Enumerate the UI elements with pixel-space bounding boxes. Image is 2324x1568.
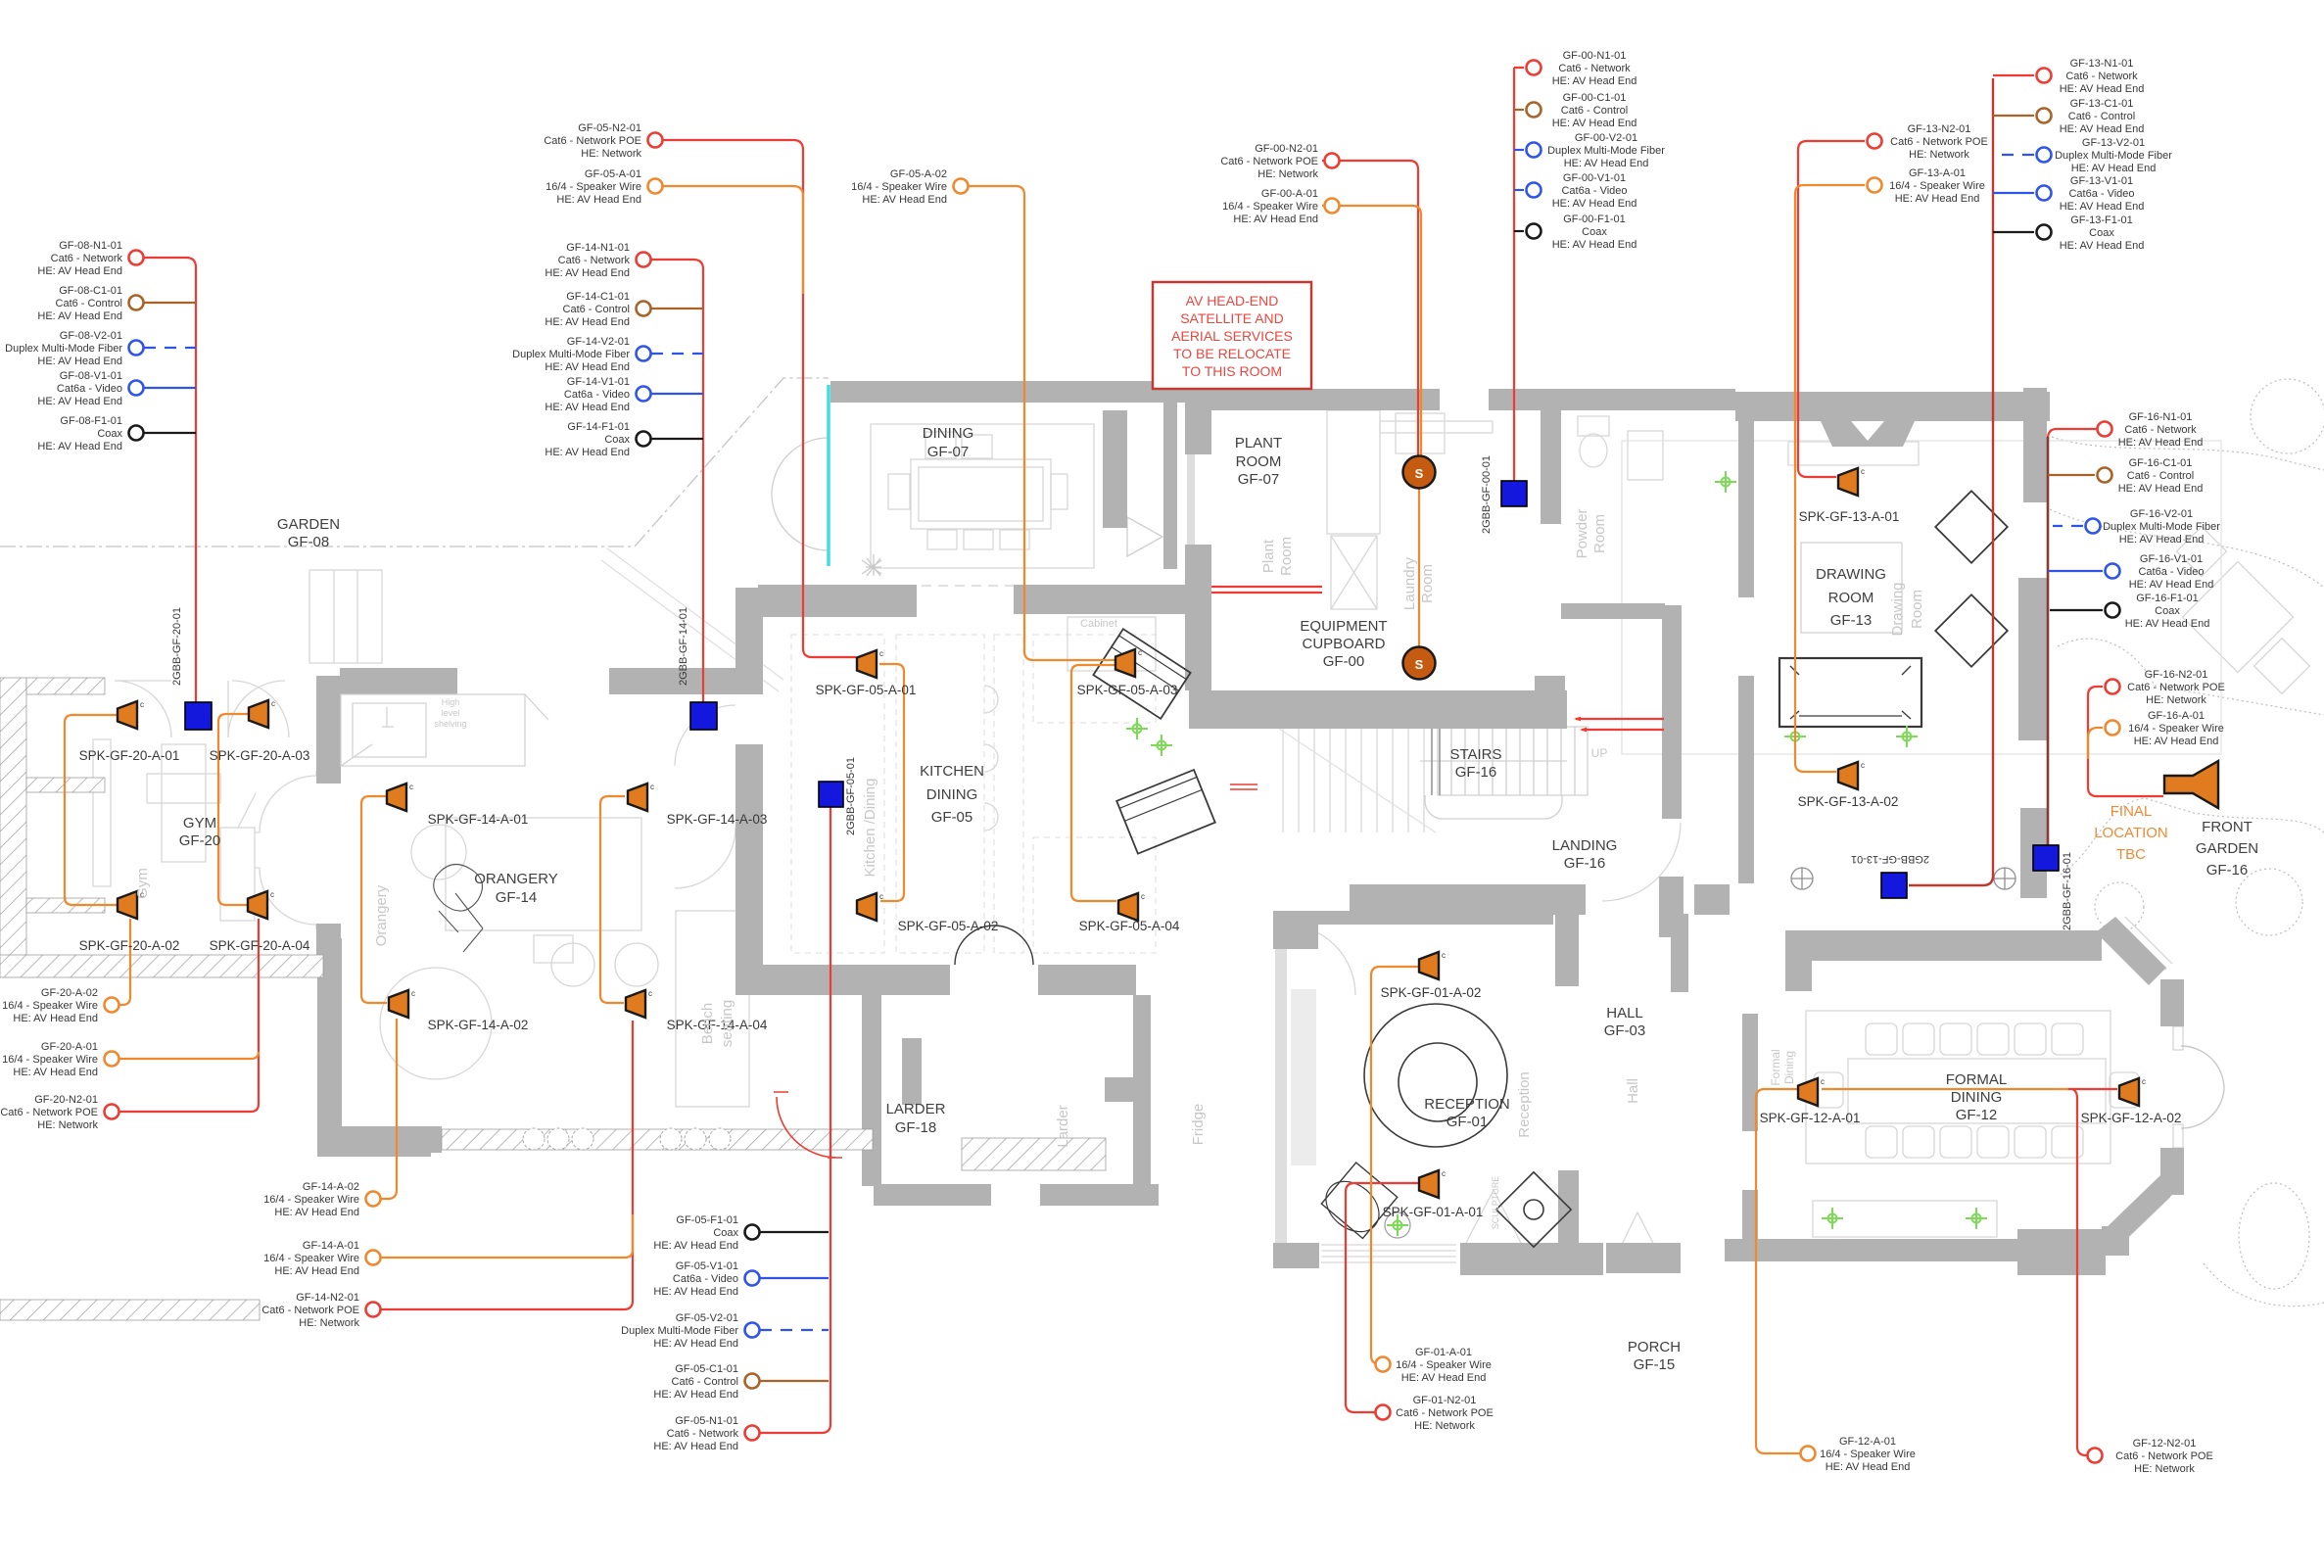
svg-text:HE: AV Head End: HE: AV Head End	[862, 194, 947, 206]
svg-text:HE: Network: HE: Network	[1909, 149, 1969, 161]
svg-text:Cat6 - Control: Cat6 - Control	[1561, 105, 1628, 117]
svg-text:GF-13: GF-13	[1830, 612, 1873, 629]
svg-text:GF-05-A-02: GF-05-A-02	[890, 168, 947, 180]
svg-text:Duplex Multi-Mode Fiber: Duplex Multi-Mode Fiber	[512, 349, 630, 360]
svg-text:FRONT: FRONT	[2202, 819, 2253, 835]
svg-text:GF-07: GF-07	[927, 444, 970, 460]
svg-text:AERIAL SERVICES: AERIAL SERVICES	[1171, 328, 1293, 344]
svg-text:2GBB-GF-05-01: 2GBB-GF-05-01	[845, 757, 857, 835]
svg-text:16/4 - Speaker Wire: 16/4 - Speaker Wire	[851, 181, 947, 193]
svg-text:GF-00-C1-01: GF-00-C1-01	[1563, 92, 1627, 104]
svg-text:PLANT: PLANT	[1235, 435, 1282, 451]
svg-text:HE: AV Head End: HE: AV Head End	[545, 267, 630, 279]
svg-text:Orangery: Orangery	[373, 884, 390, 946]
svg-text:GF-14-N2-01: GF-14-N2-01	[296, 1292, 359, 1304]
svg-text:LOCATION: LOCATION	[2094, 825, 2168, 841]
svg-text:Duplex Multi-Mode Fiber: Duplex Multi-Mode Fiber	[5, 343, 122, 355]
svg-text:FORMAL: FORMAL	[1946, 1071, 2008, 1088]
svg-text:Cat6 - Network: Cat6 - Network	[667, 1428, 739, 1440]
svg-text:GF-00-V2-01: GF-00-V2-01	[1575, 132, 1637, 144]
svg-text:AV HEAD-END: AV HEAD-END	[1186, 293, 1279, 309]
svg-text:HE: AV Head End: HE: AV Head End	[545, 402, 630, 413]
svg-text:Powder: Powder	[1574, 509, 1590, 559]
svg-text:SPK-GF-05-A-01: SPK-GF-05-A-01	[816, 683, 917, 697]
svg-text:HE: AV Head End: HE: AV Head End	[2118, 437, 2204, 449]
svg-text:GF-12-A-01: GF-12-A-01	[1839, 1436, 1896, 1448]
svg-text:GF-07: GF-07	[1238, 471, 1280, 488]
svg-text:Coax: Coax	[713, 1227, 738, 1239]
svg-text:SPK-GF-14-A-03: SPK-GF-14-A-03	[667, 812, 768, 827]
svg-text:16/4 - Speaker Wire: 16/4 - Speaker Wire	[1889, 180, 1985, 192]
svg-text:HE: AV Head End: HE: AV Head End	[2134, 736, 2219, 747]
svg-text:TBC: TBC	[2116, 846, 2146, 863]
svg-text:Cat6 - Network POE: Cat6 - Network POE	[1396, 1407, 1494, 1419]
svg-text:Coax: Coax	[2155, 605, 2180, 617]
svg-text:SPK-GF-20-A-03: SPK-GF-20-A-03	[210, 748, 310, 763]
svg-text:Room: Room	[1909, 590, 1925, 629]
svg-text:HE: Network: HE: Network	[1414, 1420, 1475, 1432]
svg-text:Duplex Multi-Mode Fiber: Duplex Multi-Mode Fiber	[2055, 150, 2172, 162]
svg-text:GF-08-C1-01: GF-08-C1-01	[59, 285, 122, 297]
svg-text:HE: AV Head End: HE: AV Head End	[2118, 483, 2204, 495]
svg-text:PORCH: PORCH	[1628, 1339, 1681, 1355]
svg-text:GF-13-N2-01: GF-13-N2-01	[1908, 123, 1971, 135]
svg-text:HE: AV Head End: HE: AV Head End	[37, 356, 122, 367]
svg-text:Kitchen /Dining: Kitchen /Dining	[862, 779, 878, 878]
svg-text:HE: AV Head End: HE: AV Head End	[653, 1389, 738, 1401]
svg-text:TO BE RELOCATE: TO BE RELOCATE	[1173, 346, 1291, 361]
svg-text:Cat6 - Network POE: Cat6 - Network POE	[0, 1107, 98, 1118]
svg-text:GF-05: GF-05	[931, 809, 973, 826]
svg-text:Coax: Coax	[1582, 226, 1607, 238]
svg-text:HE: AV Head End: HE: AV Head End	[653, 1240, 738, 1252]
svg-text:HE: AV Head End: HE: AV Head End	[1552, 239, 1637, 251]
svg-text:SPK-GF-20-A-02: SPK-GF-20-A-02	[79, 938, 180, 953]
svg-text:SPK-GF-01-A-01: SPK-GF-01-A-01	[1383, 1205, 1484, 1219]
svg-text:GF-12-N2-01: GF-12-N2-01	[2133, 1438, 2197, 1449]
svg-text:HE: AV Head End: HE: AV Head End	[653, 1441, 738, 1452]
svg-text:2GBB-GF-16-01: 2GBB-GF-16-01	[2062, 852, 2073, 930]
svg-text:GF-12: GF-12	[1956, 1107, 1998, 1123]
svg-text:HE: AV Head End: HE: AV Head End	[1552, 198, 1637, 210]
svg-text:CUPBOARD: CUPBOARD	[1302, 636, 1385, 652]
svg-text:Coax: Coax	[604, 434, 630, 446]
svg-text:LANDING: LANDING	[1552, 837, 1618, 854]
svg-text:HE: AV Head End: HE: AV Head End	[1552, 118, 1637, 129]
svg-text:Plant: Plant	[1260, 539, 1277, 573]
svg-text:2GBB-GF-00-01: 2GBB-GF-00-01	[1481, 455, 1493, 534]
svg-text:HE: Network: HE: Network	[2134, 1463, 2195, 1475]
svg-text:16/4 - Speaker Wire: 16/4 - Speaker Wire	[2128, 723, 2224, 735]
svg-text:S: S	[1415, 466, 1424, 481]
svg-text:GF-05-F1-01: GF-05-F1-01	[676, 1214, 738, 1226]
svg-text:Cat6a - Video: Cat6a - Video	[1561, 185, 1627, 197]
svg-text:GF-05-C1-01: GF-05-C1-01	[675, 1363, 738, 1375]
svg-text:DINING: DINING	[926, 786, 978, 803]
svg-text:GF-05-V2-01: GF-05-V2-01	[676, 1312, 738, 1324]
svg-text:HE: AV Head End: HE: AV Head End	[37, 310, 122, 322]
svg-text:TO THIS ROOM: TO THIS ROOM	[1182, 363, 1282, 379]
svg-text:Gym: Gym	[134, 868, 151, 899]
svg-text:HE: AV Head End: HE: AV Head End	[545, 361, 630, 373]
svg-text:HE: AV Head End: HE: AV Head End	[1233, 214, 1318, 225]
svg-text:GF-20: GF-20	[179, 832, 221, 849]
svg-text:HE: AV Head End: HE: AV Head End	[2060, 201, 2145, 213]
svg-text:HE: AV Head End: HE: AV Head End	[545, 316, 630, 328]
svg-text:HE: AV Head End: HE: AV Head End	[545, 447, 630, 458]
svg-text:DRAWING: DRAWING	[1816, 566, 1886, 583]
svg-text:16/4 - Speaker Wire: 16/4 - Speaker Wire	[2, 1000, 98, 1012]
svg-text:GF-13-F1-01: GF-13-F1-01	[2070, 214, 2133, 226]
svg-text:Cat6 - Network POE: Cat6 - Network POE	[1220, 156, 1318, 167]
svg-text:Cat6 - Network POE: Cat6 - Network POE	[1890, 136, 1988, 148]
svg-text:SPK-GF-12-A-02: SPK-GF-12-A-02	[2081, 1111, 2182, 1125]
svg-text:SPK-GF-20-A-04: SPK-GF-20-A-04	[210, 938, 310, 953]
svg-text:Duplex Multi-Mode Fiber: Duplex Multi-Mode Fiber	[2103, 521, 2220, 533]
svg-text:HE: AV Head End: HE: AV Head End	[274, 1207, 359, 1218]
svg-text:GF-01-A-01: GF-01-A-01	[1415, 1347, 1472, 1358]
svg-text:HE: AV Head End: HE: AV Head End	[2060, 240, 2145, 252]
svg-text:GF-13-V1-01: GF-13-V1-01	[2070, 175, 2133, 187]
svg-text:GF-14-A-02: GF-14-A-02	[303, 1181, 359, 1193]
svg-text:2GBB-GF-13-01: 2GBB-GF-13-01	[1851, 853, 1929, 865]
svg-text:SPK-GF-05-A-02: SPK-GF-05-A-02	[898, 919, 999, 933]
svg-text:2GBB-GF-14-01: 2GBB-GF-14-01	[678, 607, 689, 686]
svg-text:GF-14: GF-14	[496, 889, 538, 906]
svg-text:HE: AV Head End: HE: AV Head End	[13, 1013, 98, 1024]
svg-text:HE: AV Head End: HE: AV Head End	[2119, 534, 2205, 546]
svg-text:16/4 - Speaker Wire: 16/4 - Speaker Wire	[2, 1054, 98, 1066]
svg-text:HE: AV Head End: HE: AV Head End	[1552, 75, 1637, 87]
svg-text:SPK-GF-13-A-02: SPK-GF-13-A-02	[1798, 794, 1899, 809]
svg-text:GF-08-V2-01: GF-08-V2-01	[60, 330, 122, 342]
svg-text:Cat6 - Control: Cat6 - Control	[56, 298, 122, 309]
svg-text:SPK-GF-14-A-01: SPK-GF-14-A-01	[428, 812, 529, 827]
svg-text:SPK-GF-12-A-01: SPK-GF-12-A-01	[1760, 1111, 1861, 1125]
svg-text:GF-16-V2-01: GF-16-V2-01	[2130, 508, 2193, 520]
svg-text:Reception: Reception	[1516, 1071, 1533, 1138]
svg-text:Cat6a - Video: Cat6a - Video	[2068, 188, 2134, 200]
svg-text:16/4 - Speaker Wire: 16/4 - Speaker Wire	[263, 1194, 359, 1206]
svg-text:UP: UP	[1591, 746, 1608, 760]
svg-text:GF-00-N1-01: GF-00-N1-01	[1563, 50, 1627, 62]
svg-text:GF-03: GF-03	[1604, 1022, 1646, 1039]
svg-text:HE: AV Head End: HE: AV Head End	[274, 1265, 359, 1277]
svg-text:HALL: HALL	[1606, 1005, 1643, 1022]
svg-text:SPK-GF-14-A-02: SPK-GF-14-A-02	[428, 1018, 529, 1032]
svg-text:Duplex Multi-Mode Fiber: Duplex Multi-Mode Fiber	[621, 1325, 738, 1337]
svg-text:HE: AV Head End: HE: AV Head End	[653, 1338, 738, 1350]
svg-text:Room: Room	[1278, 537, 1295, 576]
svg-text:HE: Network: HE: Network	[581, 148, 641, 160]
svg-text:Cat6a - Video: Cat6a - Video	[564, 389, 630, 401]
svg-text:SPK-GF-05-A-03: SPK-GF-05-A-03	[1077, 683, 1178, 697]
svg-text:16/4 - Speaker Wire: 16/4 - Speaker Wire	[1396, 1359, 1492, 1371]
svg-text:GF-16-A-01: GF-16-A-01	[2148, 710, 2205, 722]
svg-text:GF-18: GF-18	[895, 1119, 937, 1136]
svg-text:HE: AV Head End: HE: AV Head End	[13, 1067, 98, 1078]
svg-text:GF-14-F1-01: GF-14-F1-01	[567, 421, 630, 433]
svg-text:Duplex Multi-Mode Fiber: Duplex Multi-Mode Fiber	[1547, 145, 1665, 157]
svg-text:Cat6 - Control: Cat6 - Control	[672, 1376, 738, 1388]
svg-text:GF-08: GF-08	[288, 534, 330, 550]
svg-text:level: level	[442, 708, 460, 718]
svg-text:Cat6 - Control: Cat6 - Control	[2068, 111, 2135, 122]
svg-text:FINAL: FINAL	[2111, 803, 2153, 820]
svg-text:RECEPTION: RECEPTION	[1424, 1096, 1510, 1113]
svg-text:Cat6 - Network: Cat6 - Network	[2124, 424, 2197, 436]
svg-text:Cat6 - Network: Cat6 - Network	[1558, 63, 1631, 74]
svg-text:SATELLITE AND: SATELLITE AND	[1180, 310, 1284, 326]
svg-text:Cat6 - Network POE: Cat6 - Network POE	[544, 135, 641, 147]
svg-text:GF-16-N1-01: GF-16-N1-01	[2129, 411, 2193, 423]
svg-text:ROOM: ROOM	[1828, 590, 1874, 606]
svg-text:Cat6 - Network POE: Cat6 - Network POE	[2115, 1450, 2213, 1462]
svg-text:GF-00-N2-01: GF-00-N2-01	[1255, 143, 1318, 155]
svg-text:High: High	[442, 697, 460, 707]
svg-text:S: S	[1415, 657, 1424, 672]
svg-text:Formal: Formal	[1769, 1049, 1782, 1085]
svg-text:16/4 - Speaker Wire: 16/4 - Speaker Wire	[263, 1253, 359, 1264]
svg-text:HE: AV Head End: HE: AV Head End	[37, 265, 122, 277]
svg-text:KITCHEN: KITCHEN	[920, 763, 984, 780]
svg-text:GF-16-C1-01: GF-16-C1-01	[2129, 457, 2193, 469]
svg-text:GF-20-N2-01: GF-20-N2-01	[34, 1094, 98, 1106]
svg-text:Cat6 - Network POE: Cat6 - Network POE	[261, 1305, 359, 1316]
svg-text:GF-20-A-02: GF-20-A-02	[41, 987, 98, 999]
svg-text:SPK-GF-01-A-02: SPK-GF-01-A-02	[1381, 985, 1482, 1000]
svg-text:SPK-GF-20-A-01: SPK-GF-20-A-01	[79, 748, 180, 763]
svg-text:GF-01: GF-01	[1447, 1114, 1489, 1130]
svg-text:16/4 - Speaker Wire: 16/4 - Speaker Wire	[1222, 201, 1318, 213]
svg-text:HE: AV Head End: HE: AV Head End	[2060, 123, 2145, 135]
svg-text:HE: AV Head End: HE: AV Head End	[556, 194, 641, 206]
svg-text:Cabinet: Cabinet	[1080, 618, 1117, 630]
svg-text:HE: AV Head End: HE: AV Head End	[1401, 1372, 1487, 1384]
svg-text:GF-13-N1-01: GF-13-N1-01	[2070, 58, 2134, 70]
svg-text:Cat6 - Network: Cat6 - Network	[51, 253, 123, 264]
svg-text:Cat6 - Network: Cat6 - Network	[2065, 71, 2138, 82]
svg-text:SPK-GF-14-A-04: SPK-GF-14-A-04	[667, 1018, 768, 1032]
svg-text:Bench: Bench	[699, 1003, 716, 1045]
svg-text:GF-16: GF-16	[2206, 862, 2249, 879]
svg-text:HE: AV Head End: HE: AV Head End	[37, 441, 122, 452]
svg-text:GF-14-C1-01: GF-14-C1-01	[566, 291, 630, 303]
svg-text:SCULPTURE: SCULPTURE	[1491, 1176, 1500, 1230]
svg-text:GF-00-V1-01: GF-00-V1-01	[1563, 172, 1626, 184]
svg-text:Coax: Coax	[97, 428, 122, 440]
svg-text:16/4 - Speaker Wire: 16/4 - Speaker Wire	[1820, 1449, 1916, 1460]
svg-text:HE: AV Head End: HE: AV Head End	[2125, 618, 2210, 630]
svg-text:GF-16-N2-01: GF-16-N2-01	[2145, 669, 2208, 681]
svg-text:GF-01-N2-01: GF-01-N2-01	[1413, 1395, 1477, 1406]
svg-text:GF-05-N2-01: GF-05-N2-01	[578, 122, 641, 134]
svg-text:ORANGERY: ORANGERY	[474, 871, 558, 887]
svg-text:GF-08-V1-01: GF-08-V1-01	[60, 370, 122, 382]
svg-text:GF-15: GF-15	[1634, 1356, 1676, 1373]
svg-text:HE: AV Head End: HE: AV Head End	[37, 396, 122, 407]
svg-text:Laundry: Laundry	[1401, 556, 1418, 610]
svg-text:Cat6a - Video: Cat6a - Video	[673, 1273, 738, 1285]
svg-text:GF-13-C1-01: GF-13-C1-01	[2070, 98, 2134, 110]
svg-text:HE: AV Head End: HE: AV Head End	[1895, 193, 1980, 205]
svg-text:shelving: shelving	[434, 719, 466, 729]
svg-text:GARDEN: GARDEN	[2196, 840, 2258, 857]
svg-text:GF-00-F1-01: GF-00-F1-01	[1563, 214, 1626, 225]
svg-text:GYM: GYM	[183, 815, 216, 832]
svg-text:Larder: Larder	[1055, 1105, 1071, 1147]
svg-text:Cat6a - Video: Cat6a - Video	[2138, 566, 2204, 578]
svg-text:GF-14-V1-01: GF-14-V1-01	[567, 376, 630, 388]
svg-text:LARDER: LARDER	[886, 1101, 946, 1117]
svg-text:Fridge: Fridge	[1190, 1104, 1207, 1146]
svg-text:16/4 - Speaker Wire: 16/4 - Speaker Wire	[545, 181, 641, 193]
svg-text:STAIRS: STAIRS	[1449, 746, 1501, 763]
svg-text:HE: AV Head End: HE: AV Head End	[1564, 158, 1649, 169]
svg-text:Cat6 - Control: Cat6 - Control	[2127, 470, 2194, 482]
svg-text:SPK-GF-05-A-04: SPK-GF-05-A-04	[1079, 919, 1180, 933]
svg-text:Cat6 - Control: Cat6 - Control	[563, 304, 630, 315]
svg-text:HE: AV Head End: HE: AV Head End	[1826, 1461, 1911, 1473]
svg-text:Dining: Dining	[1782, 1051, 1796, 1084]
svg-text:Room: Room	[1591, 514, 1608, 553]
svg-text:HE: Network: HE: Network	[1257, 168, 1318, 180]
svg-text:GF-13-A-01: GF-13-A-01	[1909, 167, 1966, 179]
svg-text:HE: AV Head End: HE: AV Head End	[2071, 163, 2157, 174]
svg-text:GF-05-A-01: GF-05-A-01	[585, 168, 641, 180]
svg-text:Drawing: Drawing	[1889, 582, 1906, 636]
svg-text:GF-14-N1-01: GF-14-N1-01	[566, 242, 630, 254]
svg-text:GF-20-A-01: GF-20-A-01	[41, 1041, 98, 1053]
svg-text:GF-05-N1-01: GF-05-N1-01	[675, 1415, 738, 1427]
svg-text:GF-16-F1-01: GF-16-F1-01	[2136, 593, 2199, 604]
svg-text:GF-00: GF-00	[1323, 653, 1365, 670]
svg-text:GF-16-V1-01: GF-16-V1-01	[2140, 553, 2203, 565]
svg-text:HE: Network: HE: Network	[2146, 694, 2206, 706]
svg-text:GF-16: GF-16	[1455, 764, 1497, 781]
svg-text:GF-13-V2-01: GF-13-V2-01	[2082, 137, 2145, 149]
svg-text:EQUIPMENT: EQUIPMENT	[1300, 618, 1387, 635]
svg-text:HE: Network: HE: Network	[299, 1317, 359, 1329]
svg-text:seating: seating	[719, 1000, 735, 1047]
svg-text:GF-14-V2-01: GF-14-V2-01	[567, 336, 630, 348]
svg-text:Hall: Hall	[1625, 1078, 1641, 1104]
svg-text:GARDEN: GARDEN	[277, 516, 340, 533]
svg-text:GF-00-A-01: GF-00-A-01	[1261, 188, 1318, 200]
svg-text:GF-05-V1-01: GF-05-V1-01	[676, 1260, 738, 1272]
svg-text:Cat6a - Video: Cat6a - Video	[57, 383, 122, 395]
svg-text:GF-14-A-01: GF-14-A-01	[303, 1240, 359, 1252]
svg-text:SPK-GF-13-A-01: SPK-GF-13-A-01	[1799, 509, 1900, 524]
svg-text:GF-16: GF-16	[1564, 855, 1606, 872]
svg-text:HE: Network: HE: Network	[37, 1119, 98, 1131]
svg-text:ROOM: ROOM	[1236, 453, 1282, 470]
svg-text:Room: Room	[1419, 564, 1436, 603]
svg-text:HE: AV Head End: HE: AV Head End	[2060, 83, 2145, 95]
svg-text:2GBB-GF-20-01: 2GBB-GF-20-01	[171, 607, 183, 686]
svg-text:DINING: DINING	[1951, 1089, 2003, 1106]
svg-text:DINING: DINING	[923, 425, 974, 442]
svg-text:Coax: Coax	[2089, 227, 2114, 239]
svg-text:HE: AV Head End: HE: AV Head End	[2129, 579, 2214, 591]
svg-text:HE: AV Head End: HE: AV Head End	[653, 1286, 738, 1298]
svg-text:Cat6 - Network: Cat6 - Network	[558, 255, 631, 266]
svg-text:Cat6 - Network POE: Cat6 - Network POE	[2127, 682, 2225, 693]
svg-text:GF-08-F1-01: GF-08-F1-01	[60, 415, 122, 427]
svg-text:GF-08-N1-01: GF-08-N1-01	[59, 240, 122, 252]
